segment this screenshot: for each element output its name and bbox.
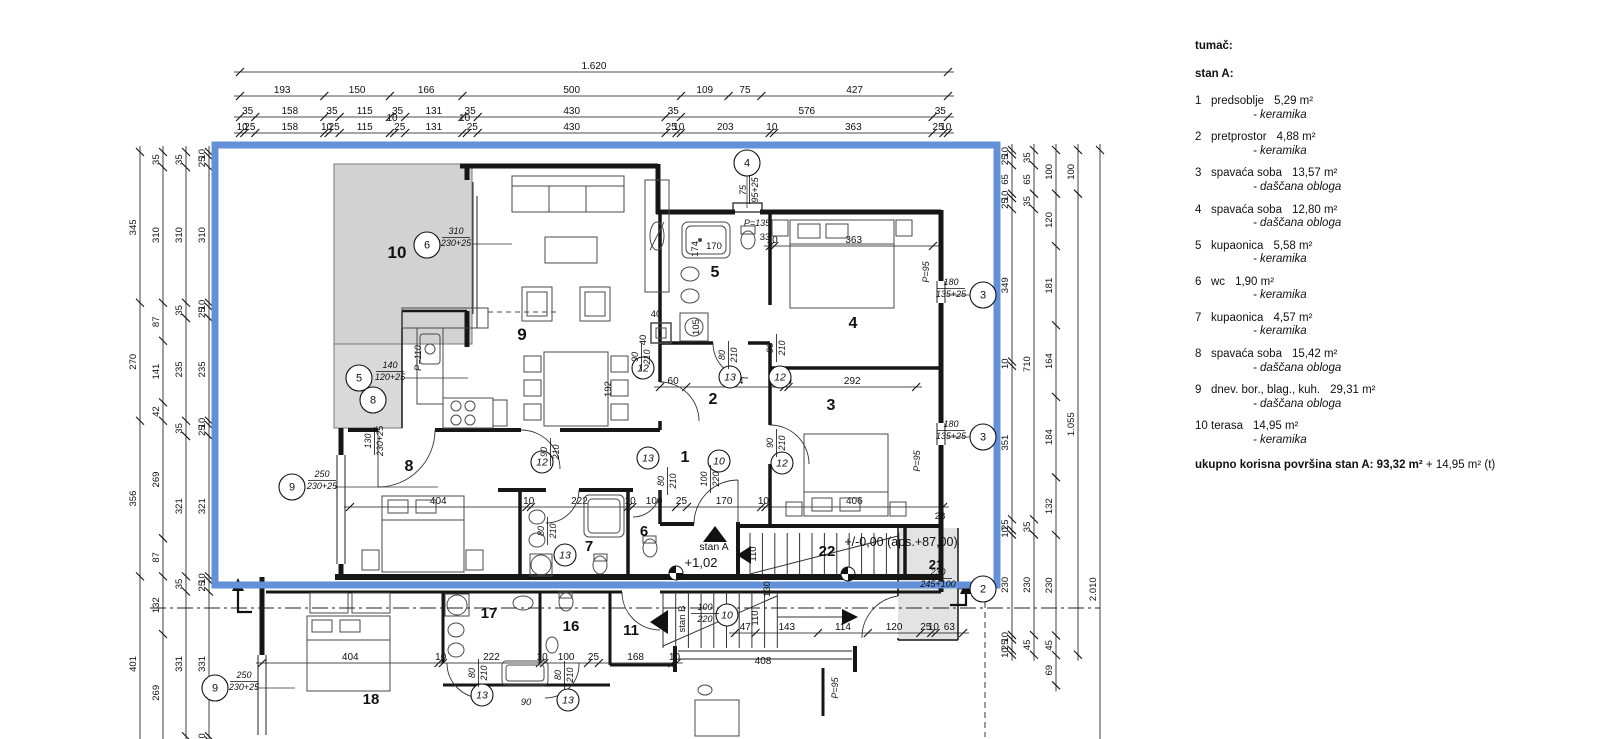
dim-label: 35 [174,305,185,316]
dim-label: 269 [151,472,162,488]
dim-label: 184 [1044,429,1055,445]
dim-label: 222 [483,652,500,663]
legend-item: 6wc1,90 m² - keramika [1195,276,1535,303]
legend-item: 1predsoblje5,29 m² - keramika [1195,95,1535,122]
dim-chain: 1025651025349103512510230102510 [1000,144,1016,661]
dim-label: 2.010 [1088,577,1099,601]
dim-label: 25 [394,122,406,133]
dim-chain: 102531010252351025321102533110 [197,146,213,739]
dim-label: 10 [940,122,952,133]
dim-label: 10 [673,122,685,133]
dim-label: 25 [1000,198,1011,209]
room-number: 9 [517,325,526,344]
dim-label: 10 [1000,647,1011,658]
marker-number: 10 [721,610,733,622]
marker-number: 2 [980,584,986,596]
svg-text:90: 90 [630,352,640,362]
dim-label: 10 [1000,527,1011,538]
marker-number: 13 [476,690,488,702]
dim-label: 331 [197,656,208,672]
marker-number: 13 [642,453,654,465]
dim-label: 710 [1022,356,1033,372]
dim-label: 310 [174,227,185,243]
opening-size-fraction: 250230+25 [228,670,260,692]
svg-text:220: 220 [696,614,712,624]
svg-text:210: 210 [551,444,561,460]
svg-text:80: 80 [717,350,727,360]
dim-label: 25 [1000,155,1011,166]
svg-text:210: 210 [565,667,575,683]
dim-label: 45 [1022,640,1033,651]
dim-label: 60 [668,376,680,387]
marker-number: 13 [559,550,571,562]
svg-text:210: 210 [548,523,558,539]
opening-marker: 6 [414,232,440,258]
svg-text:230+25: 230+25 [306,481,338,491]
dim-label: 115 [357,106,373,117]
dim-label: 25 [467,122,479,133]
dim-label: 35 [242,106,254,117]
opening-marker: 5 [346,365,372,391]
svg-text:135+25: 135+25 [936,289,967,299]
svg-text:90: 90 [765,438,775,448]
marker-number: 4 [744,158,750,170]
dim-label: 100 [558,652,575,663]
dim-label: 132 [151,597,162,613]
dim-label: 166 [418,85,435,96]
dim-label: 10 [766,122,778,133]
floorplan-page: 1.62019315016650010975427351583511535131… [0,0,1600,739]
marker-number: 12 [536,457,548,469]
opening-size-fraction: 7595+25 [738,176,760,204]
legend-item: 10terasa14,95 m² - keramika [1195,420,1535,447]
plan-label: 33 [760,232,771,243]
dim-label: 35 [326,106,338,117]
dim-label: 25 [329,122,341,133]
plan-label: 110 [748,546,759,561]
dim-label: 35 [174,154,185,165]
dim-chain: 345270356401 [128,146,144,739]
dim-chain: 1.620 [234,61,954,76]
dim-label: 576 [798,106,815,117]
svg-text:90: 90 [539,447,549,457]
dim-label: 25 [244,122,256,133]
dim-label: 10 [758,496,770,507]
marker-number: 12 [774,372,786,384]
opening-marker: 12 [771,452,793,474]
dim-label: 10 [928,622,940,633]
legend-title: tumač: [1195,40,1535,54]
dim-label: 168 [627,652,644,663]
plan-label: P=95 [912,449,922,471]
dim-label: 230 [1044,577,1055,593]
opening-size-fraction: 250230+25 [306,469,338,491]
opening-marker: 10 [716,604,738,626]
svg-text:210: 210 [668,473,678,489]
svg-text:180: 180 [943,277,958,287]
dim-label: 363 [845,122,862,133]
room-number: 2 [709,391,718,408]
dim-label: 292 [844,376,861,387]
svg-text:210: 210 [777,435,787,451]
dim-label: 500 [563,85,580,96]
dim-chain: 1001201811641841322304569 [1044,144,1060,691]
dim-label: 150 [349,85,366,96]
svg-text:250: 250 [235,670,251,680]
legend-apartment: stan A: [1195,68,1535,82]
dim-label: 120 [1044,212,1055,228]
dim-label: 141 [151,364,162,380]
dim-label: 42 [151,406,162,417]
svg-text:230: 230 [929,567,945,577]
plan-label: 174 [690,241,701,257]
dim-chain: 35310871414226987132269 [151,146,167,739]
dim-chain: 3565357103523045 [1022,144,1038,661]
svg-text:80: 80 [536,526,546,536]
marker-number: 9 [289,482,295,494]
dim-label: 35 [668,106,680,117]
dim-label: 35 [174,423,185,434]
legend: tumač: stan A: 1predsoblje5,29 m² - kera… [1195,40,1535,473]
dim-label: 69 [1044,665,1055,676]
room-number: 8 [405,458,414,475]
dim-chain: 35310352353532135331 [174,146,190,739]
dim-label: 349 [1000,277,1011,293]
legend-item: 3spavaća soba13,57 m² - daščana obloga [1195,167,1535,194]
dim-label: 230 [1000,577,1011,593]
legend-item: 4spavaća soba12,80 m² - daščana obloga [1195,204,1535,231]
dim-label: 401 [128,656,139,672]
dim-label: 164 [1044,353,1055,369]
opening-marker: 13 [719,366,741,388]
opening-size-fraction: 80210 [536,517,558,545]
dim-label: 25 [197,581,208,592]
svg-text:230+25: 230+25 [440,238,472,248]
dim-label: 230 [1022,577,1033,593]
marker-number: 10 [713,456,725,468]
dim-label: 10 [1000,358,1011,369]
room-number: 10 [388,243,407,262]
dim-label: 10 [435,652,447,663]
plan-label: 170 [706,241,722,252]
opening-marker: 9 [202,675,228,701]
dim-label: 203 [717,122,734,133]
dim-label: 270 [128,354,139,370]
dim-label: 235 [174,361,185,377]
dim-label: 310 [197,227,208,243]
opening-marker: 4 [734,150,760,176]
svg-text:180: 180 [943,419,958,429]
opening-marker: 10 [708,450,730,472]
plan-label: 105 [691,319,702,335]
svg-text:210: 210 [729,347,739,363]
svg-text:230+25: 230+25 [228,682,260,692]
dim-label: 404 [430,496,447,507]
plan-label: 408 [755,656,772,667]
room-number: 16 [563,618,580,635]
marker-number: 5 [356,373,362,385]
svg-text:100: 100 [697,602,712,612]
plan-label: 40 [651,309,662,320]
marker-number: 12 [776,458,788,470]
dim-label: 65 [1000,174,1011,185]
dim-label: 25 [588,652,600,663]
dim-chain: 351583511535131354303557635 [234,106,954,121]
dim-label: 115 [357,122,373,133]
svg-text:80: 80 [467,668,477,678]
plan-label: P=135 [744,218,771,228]
opening-marker: 13 [557,689,579,711]
opening-marker: 3 [970,282,996,308]
svg-text:130: 130 [363,433,373,448]
svg-text:75: 75 [738,184,748,195]
opening-marker: 9 [279,474,305,500]
dim-label: 158 [281,122,298,133]
dim-label: 35 [1022,152,1033,163]
svg-text:80: 80 [656,476,666,486]
dim-label: 35 [1022,196,1033,207]
dim-label: 131 [425,106,442,117]
dim-label: 1.620 [581,61,606,72]
dim-label: 87 [151,316,162,327]
dim-label: 310 [151,227,162,243]
dim-label: 35 [151,154,162,165]
dim-label: 120 [886,622,903,633]
dim-label: 193 [274,85,291,96]
dim-label: 331 [174,656,185,672]
plan-label: stan B [677,606,688,633]
plan-label: +/-0,00 (aps.+87,00) [844,535,957,549]
dim-label: 35 [935,106,947,117]
opening-marker: 13 [471,684,493,706]
plan-label: 90 [521,697,532,708]
dim-label: 35 [174,579,185,590]
svg-text:230+25: 230+25 [375,425,385,457]
marker-number: 3 [980,432,986,444]
plan-label: P=95 [921,260,931,282]
svg-text:250: 250 [313,469,329,479]
plan-label: 40 [638,335,649,346]
dim-label: 45 [1044,640,1055,651]
dim-label: 25 [197,307,208,318]
dim-label: 132 [1044,498,1055,514]
dim-label: 100 [1066,164,1077,180]
plan-label: 130 [762,581,773,597]
dim-label: 10 [523,496,535,507]
marker-number: 3 [980,290,986,302]
dim-label: 25 [197,157,208,168]
dim-label: 100 [1044,164,1055,180]
stan-a-entrance-arrow [703,526,727,542]
marker-number: 6 [424,240,430,252]
dim-chain: 19315016650010975427 [234,85,954,100]
svg-text:210: 210 [479,665,489,681]
dim-label: 222 [571,496,588,507]
opening-marker: 12 [769,366,791,388]
room-number: 4 [849,315,858,332]
dim-label: 131 [425,122,442,133]
dim-label: 109 [696,85,713,96]
dim-label: 35 [1022,522,1033,533]
room-number: 1 [681,449,690,466]
svg-text:135+25: 135+25 [936,431,967,441]
opening-marker: 13 [637,447,659,469]
room-number: 6 [640,523,648,540]
plan-label: P=95 [830,676,840,698]
legend-item: 5kupaonica5,58 m² - keramika [1195,240,1535,267]
dim-label: 181 [1044,278,1055,294]
opening-marker: 8 [360,387,386,413]
dim-label: 321 [174,498,185,514]
room-number: 5 [711,264,720,281]
svg-text:220: 220 [711,471,721,487]
svg-text:120+25: 120+25 [375,372,406,382]
svg-text:310: 310 [448,226,463,236]
room-number: 17 [481,605,498,622]
legend-item: 2pretprostor4,88 m² - keramika [1195,131,1535,158]
plan-label: P=110 [413,345,423,371]
room-number: 11 [623,622,639,639]
dim-label: 430 [563,122,580,133]
dim-label: 87 [151,552,162,563]
dim-chain: 1001.055 [1066,144,1082,661]
legend-item: 8spavaća soba15,42 m² - daščana obloga [1195,348,1535,375]
plan-label: stan A [699,541,728,553]
dim-label: 345 [128,219,139,235]
opening-marker: 2 [970,576,996,602]
opening-size-fraction: 100220 [691,602,719,624]
plan-label: 28 [935,511,946,522]
legend-item: 9dnev. bor., blag., kuh.29,31 m² - dašča… [1195,384,1535,411]
dim-label: 321 [197,498,208,514]
dim-label: 351 [1000,435,1011,451]
dim-label: 10 [197,733,208,739]
plan-label: 110 [750,610,761,625]
svg-text:80: 80 [553,670,563,680]
room-number: 3 [827,397,836,414]
svg-text:90: 90 [765,343,775,353]
svg-text:210: 210 [642,349,652,365]
legend-total: ukupno korisna površina stan A: 93,32 m²… [1195,459,1535,473]
dim-label: 63 [944,622,956,633]
marker-number: 9 [212,683,218,695]
dim-chain: 2.010 [1088,144,1104,739]
dim-label: 404 [342,652,359,663]
room-number: 7 [585,538,593,555]
marker-number: 13 [724,372,736,384]
svg-text:100: 100 [699,471,709,486]
dim-label: 269 [151,685,162,701]
legend-item: 7kupaonica4,57 m² - keramika [1195,312,1535,339]
dim-label: 427 [846,85,863,96]
opening-marker: 13 [554,544,576,566]
dim-label: 65 [1022,174,1033,185]
room-number: 18 [363,691,380,708]
dim-label: 235 [197,361,208,377]
plan-label: 192 [603,381,614,397]
svg-text:245+100: 245+100 [919,579,955,589]
svg-text:210: 210 [777,340,787,356]
dim-label: 356 [128,491,139,507]
plan-label: +1,02 [685,555,718,570]
dim-label: 430 [563,106,580,117]
marker-number: 8 [370,395,376,407]
svg-text:140: 140 [382,360,397,370]
svg-text:95+25: 95+25 [750,176,760,202]
dim-label: 25 [676,496,688,507]
dim-label: 158 [281,106,298,117]
dim-label: 25 [197,425,208,436]
marker-number: 13 [562,695,574,707]
opening-marker: 3 [970,424,996,450]
dim-label: 143 [778,622,795,633]
dim-label: 170 [716,496,733,507]
room-number: 22 [819,543,836,560]
dim-label: 1.055 [1066,412,1077,436]
dim-label: 75 [739,85,751,96]
